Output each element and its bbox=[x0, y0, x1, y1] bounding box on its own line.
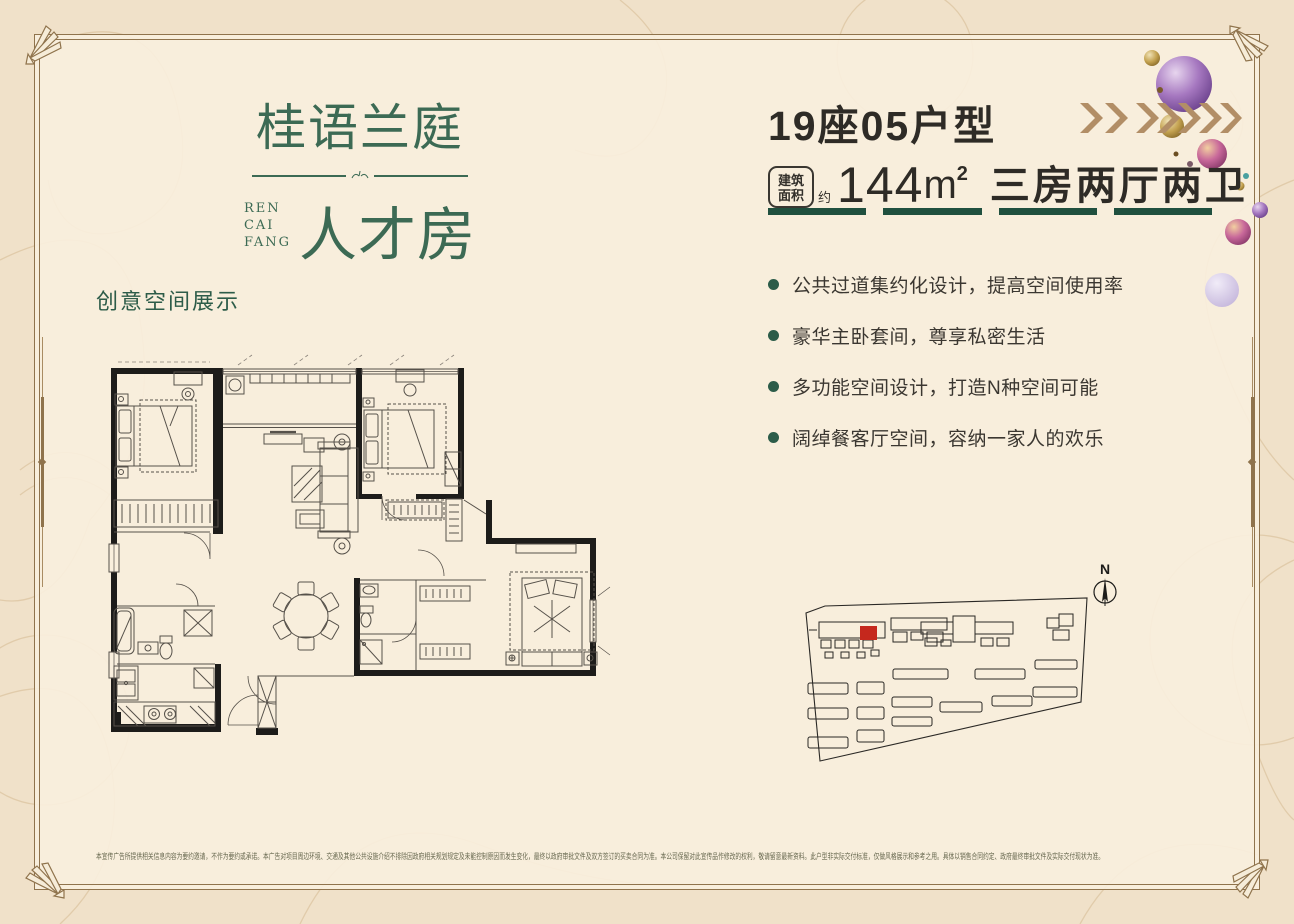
hallway-closets bbox=[386, 499, 462, 541]
area-superscript: 2 bbox=[957, 163, 968, 185]
brochure-page: { "page": { "bg_outer": "#f0e1c9", "bg_p… bbox=[0, 0, 1294, 924]
walls bbox=[111, 368, 596, 735]
dining-table bbox=[273, 582, 340, 650]
compass-icon: N bbox=[1094, 561, 1116, 606]
disclaimer-text: 本宣传广告所提供相关信息内容为要约邀请，不作为要约或承诺。本广告对项目周边环境、… bbox=[96, 851, 931, 862]
area-spec-row: 建筑 面积 约 144 m2 三房两厅两卫 bbox=[768, 152, 1248, 208]
chevron-arrows-icon bbox=[1136, 103, 1242, 133]
living-room-furniture bbox=[264, 432, 358, 554]
bedroom2-furniture bbox=[363, 370, 461, 486]
bullet-dot-icon bbox=[768, 432, 779, 443]
area-badge: 建筑 面积 bbox=[768, 166, 814, 208]
bathroom1-fixtures bbox=[114, 608, 212, 659]
svg-text:N: N bbox=[1100, 561, 1110, 577]
partitions bbox=[114, 424, 486, 676]
left-edge-ornament bbox=[40, 337, 44, 587]
site-buildings-rows bbox=[808, 660, 1077, 748]
highlighted-unit bbox=[860, 626, 877, 640]
area-number: 144 bbox=[837, 162, 923, 208]
site-plan: N bbox=[795, 556, 1125, 774]
corner-fan-ornament-icon bbox=[22, 22, 68, 68]
shaft bbox=[258, 676, 276, 728]
unit-title: 19座05户型 bbox=[768, 92, 996, 152]
layout-spec: 三房两厅两卫 bbox=[990, 164, 1248, 208]
windows bbox=[109, 369, 596, 678]
feature-list: 公共过道集约化设计，提高空间使用率 豪华主卧套间，尊享私密生活 多功能空间设计，… bbox=[768, 272, 1124, 476]
logo-title: 桂语兰庭 bbox=[244, 88, 476, 160]
corner-fan-ornament-icon bbox=[22, 856, 68, 902]
bedroom1-furniture bbox=[114, 372, 218, 527]
bathroom2-fixtures bbox=[360, 584, 382, 664]
creative-space-label: 创意空间展示 bbox=[96, 284, 240, 316]
feature-item: 豪华主卧套间，尊享私密生活 bbox=[768, 323, 1124, 347]
exterior-dashes bbox=[118, 355, 454, 365]
bullet-dot-icon bbox=[768, 279, 779, 290]
balcony-furniture bbox=[226, 374, 350, 394]
bedroom3-furniture bbox=[420, 544, 597, 666]
feature-item: 公共过道集约化设计，提高空间使用率 bbox=[768, 272, 1124, 296]
project-logo: 桂语兰庭 REN CAI FANG 人才房 bbox=[244, 88, 476, 272]
right-edge-ornament bbox=[1250, 337, 1254, 587]
area-unit: m2 bbox=[923, 162, 967, 208]
bullet-dot-icon bbox=[768, 330, 779, 341]
corner-fan-ornament-icon bbox=[1226, 856, 1272, 902]
kitchen-fixtures bbox=[114, 666, 215, 726]
green-dashed-underline bbox=[768, 208, 1212, 215]
floor-plan bbox=[98, 354, 658, 764]
approx-label: 约 bbox=[818, 187, 831, 206]
logo-flourish-icon bbox=[351, 170, 369, 182]
logo-divider bbox=[252, 170, 468, 182]
chevron-arrows-icon bbox=[1080, 103, 1128, 133]
logo-subtitle: 人才房 bbox=[299, 188, 476, 272]
site-buildings-top bbox=[809, 614, 1073, 658]
bullet-dot-icon bbox=[768, 381, 779, 392]
logo-romanized: REN CAI FANG bbox=[244, 188, 291, 251]
feature-item: 阔绰餐客厅空间，容纳一家人的欢乐 bbox=[768, 425, 1124, 449]
corner-fan-ornament-icon bbox=[1226, 22, 1272, 68]
feature-item: 多功能空间设计，打造N种空间可能 bbox=[768, 374, 1124, 398]
